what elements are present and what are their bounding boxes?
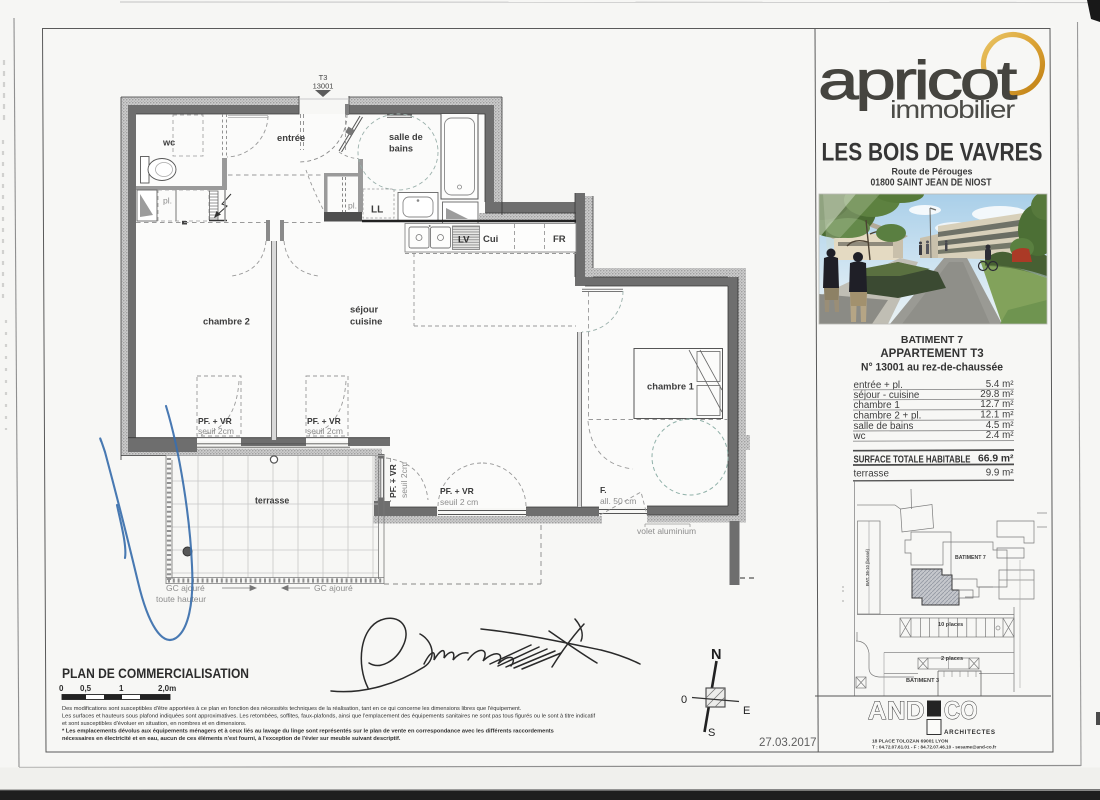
- svg-text:F.: F.: [600, 485, 607, 495]
- svg-text:9.9 m²: 9.9 m²: [986, 468, 1015, 479]
- svg-text:2 places: 2 places: [941, 656, 963, 662]
- svg-text:12.1 m²: 12.1 m²: [980, 410, 1014, 421]
- svg-text:entrée: entrée: [277, 132, 305, 143]
- svg-text:12.7 m²: 12.7 m²: [980, 399, 1014, 410]
- svg-text:bains: bains: [389, 144, 413, 154]
- svg-text:01800 SAINT JEAN DE NIOST: 01800 SAINT JEAN DE NIOST: [871, 178, 992, 189]
- svg-text:LL: LL: [371, 205, 383, 216]
- svg-text:BATIMENT 3: BATIMENT 3: [906, 678, 939, 684]
- svg-text:APPARTEMENT T3: APPARTEMENT T3: [880, 348, 983, 360]
- svg-text:seuil 2cm: seuil 2cm: [307, 426, 343, 436]
- svg-text:seuil 2 cm: seuil 2 cm: [440, 497, 478, 507]
- svg-text:1: 1: [119, 684, 124, 693]
- svg-text:PLAN DE COMMERCIALISATION: PLAN DE COMMERCIALISATION: [62, 666, 249, 681]
- svg-text:salle de: salle de: [389, 132, 423, 142]
- svg-text:GC ajouré: GC ajouré: [314, 583, 353, 593]
- svg-text:pl.: pl.: [163, 196, 172, 206]
- svg-text:cuisine: cuisine: [350, 316, 382, 327]
- svg-text:FR: FR: [553, 234, 566, 245]
- svg-text:seuil 2cm: seuil 2cm: [399, 462, 409, 498]
- svg-text:0: 0: [681, 694, 687, 706]
- svg-text:N° 13001 au rez-de-chaussée: N° 13001 au rez-de-chaussée: [861, 362, 1003, 374]
- svg-text:27.03.2017: 27.03.2017: [759, 737, 817, 749]
- svg-text:Cui: Cui: [483, 234, 498, 245]
- svg-text:E: E: [743, 705, 750, 717]
- svg-text:ARCHITECTES: ARCHITECTES: [944, 729, 996, 736]
- svg-text:T : 04.72.07.61.01 - F : 84.72: T : 04.72.07.61.01 - F : 84.72.07.46.10 …: [872, 745, 996, 750]
- svg-text:CO: CO: [944, 697, 978, 725]
- svg-text:66.9 m²: 66.9 m²: [978, 454, 1014, 465]
- svg-text:LV: LV: [458, 235, 470, 246]
- svg-text:volet aluminium: volet aluminium: [637, 526, 696, 536]
- svg-text:AND: AND: [868, 697, 925, 725]
- svg-text:2,0m: 2,0m: [158, 684, 176, 693]
- svg-text:Des modifications sont suscept: Des modifications sont susceptibles d'êt…: [62, 706, 522, 712]
- svg-text:nécessaires en électricité et: nécessaires en électricité et en eau, au…: [62, 736, 401, 742]
- svg-text:PF. + VR: PF. + VR: [198, 416, 232, 426]
- svg-text:wc: wc: [853, 431, 866, 442]
- svg-text:0: 0: [59, 684, 64, 693]
- svg-text:Route de Pérouges: Route de Pérouges: [892, 167, 973, 178]
- svg-text:chambre 2: chambre 2: [203, 316, 250, 327]
- svg-text:LES BOIS DE VAVRES: LES BOIS DE VAVRES: [822, 139, 1043, 167]
- svg-text:all. 50 cm: all. 50 cm: [600, 496, 636, 506]
- svg-text:séjour: séjour: [350, 304, 378, 315]
- svg-text:BAT. 36-10 (bossé): BAT. 36-10 (bossé): [865, 548, 870, 586]
- svg-text:immobilier: immobilier: [890, 96, 1015, 124]
- svg-text:PF. + VR: PF. + VR: [440, 486, 474, 496]
- svg-text:S: S: [708, 727, 715, 739]
- svg-text:terrasse: terrasse: [854, 469, 890, 480]
- svg-text:pl.: pl.: [348, 201, 357, 211]
- svg-text:toute hauteur: toute hauteur: [156, 594, 206, 604]
- svg-text:PF. + VR: PF. + VR: [388, 464, 398, 498]
- svg-text:10 places: 10 places: [938, 622, 963, 628]
- svg-text:terrasse: terrasse: [255, 496, 289, 506]
- svg-text:chambre 1: chambre 1: [854, 400, 900, 411]
- svg-text:13001: 13001: [313, 82, 334, 91]
- svg-text:chambre 1: chambre 1: [647, 381, 694, 392]
- svg-text:GC ajouré: GC ajouré: [166, 583, 205, 593]
- svg-text:0,5: 0,5: [80, 684, 92, 693]
- svg-text:2.4 m²: 2.4 m²: [986, 430, 1015, 441]
- svg-text:et sont susceptibles d'évoluer: et sont susceptibles d'évoluer en situat…: [62, 721, 247, 727]
- svg-text:Les surfaces et hauteurs sous: Les surfaces et hauteurs sous plafond in…: [62, 714, 595, 720]
- svg-text:PF. + VR: PF. + VR: [307, 416, 341, 426]
- svg-text:* Les emplacements dévolus aux: * Les emplacements dévolus aux équipemen…: [62, 729, 554, 735]
- svg-text:N: N: [711, 647, 721, 663]
- svg-text:seuil 2cm: seuil 2cm: [198, 426, 234, 436]
- svg-text:BATIMENT 7: BATIMENT 7: [901, 334, 963, 346]
- svg-text:BATIMENT 7: BATIMENT 7: [955, 555, 986, 561]
